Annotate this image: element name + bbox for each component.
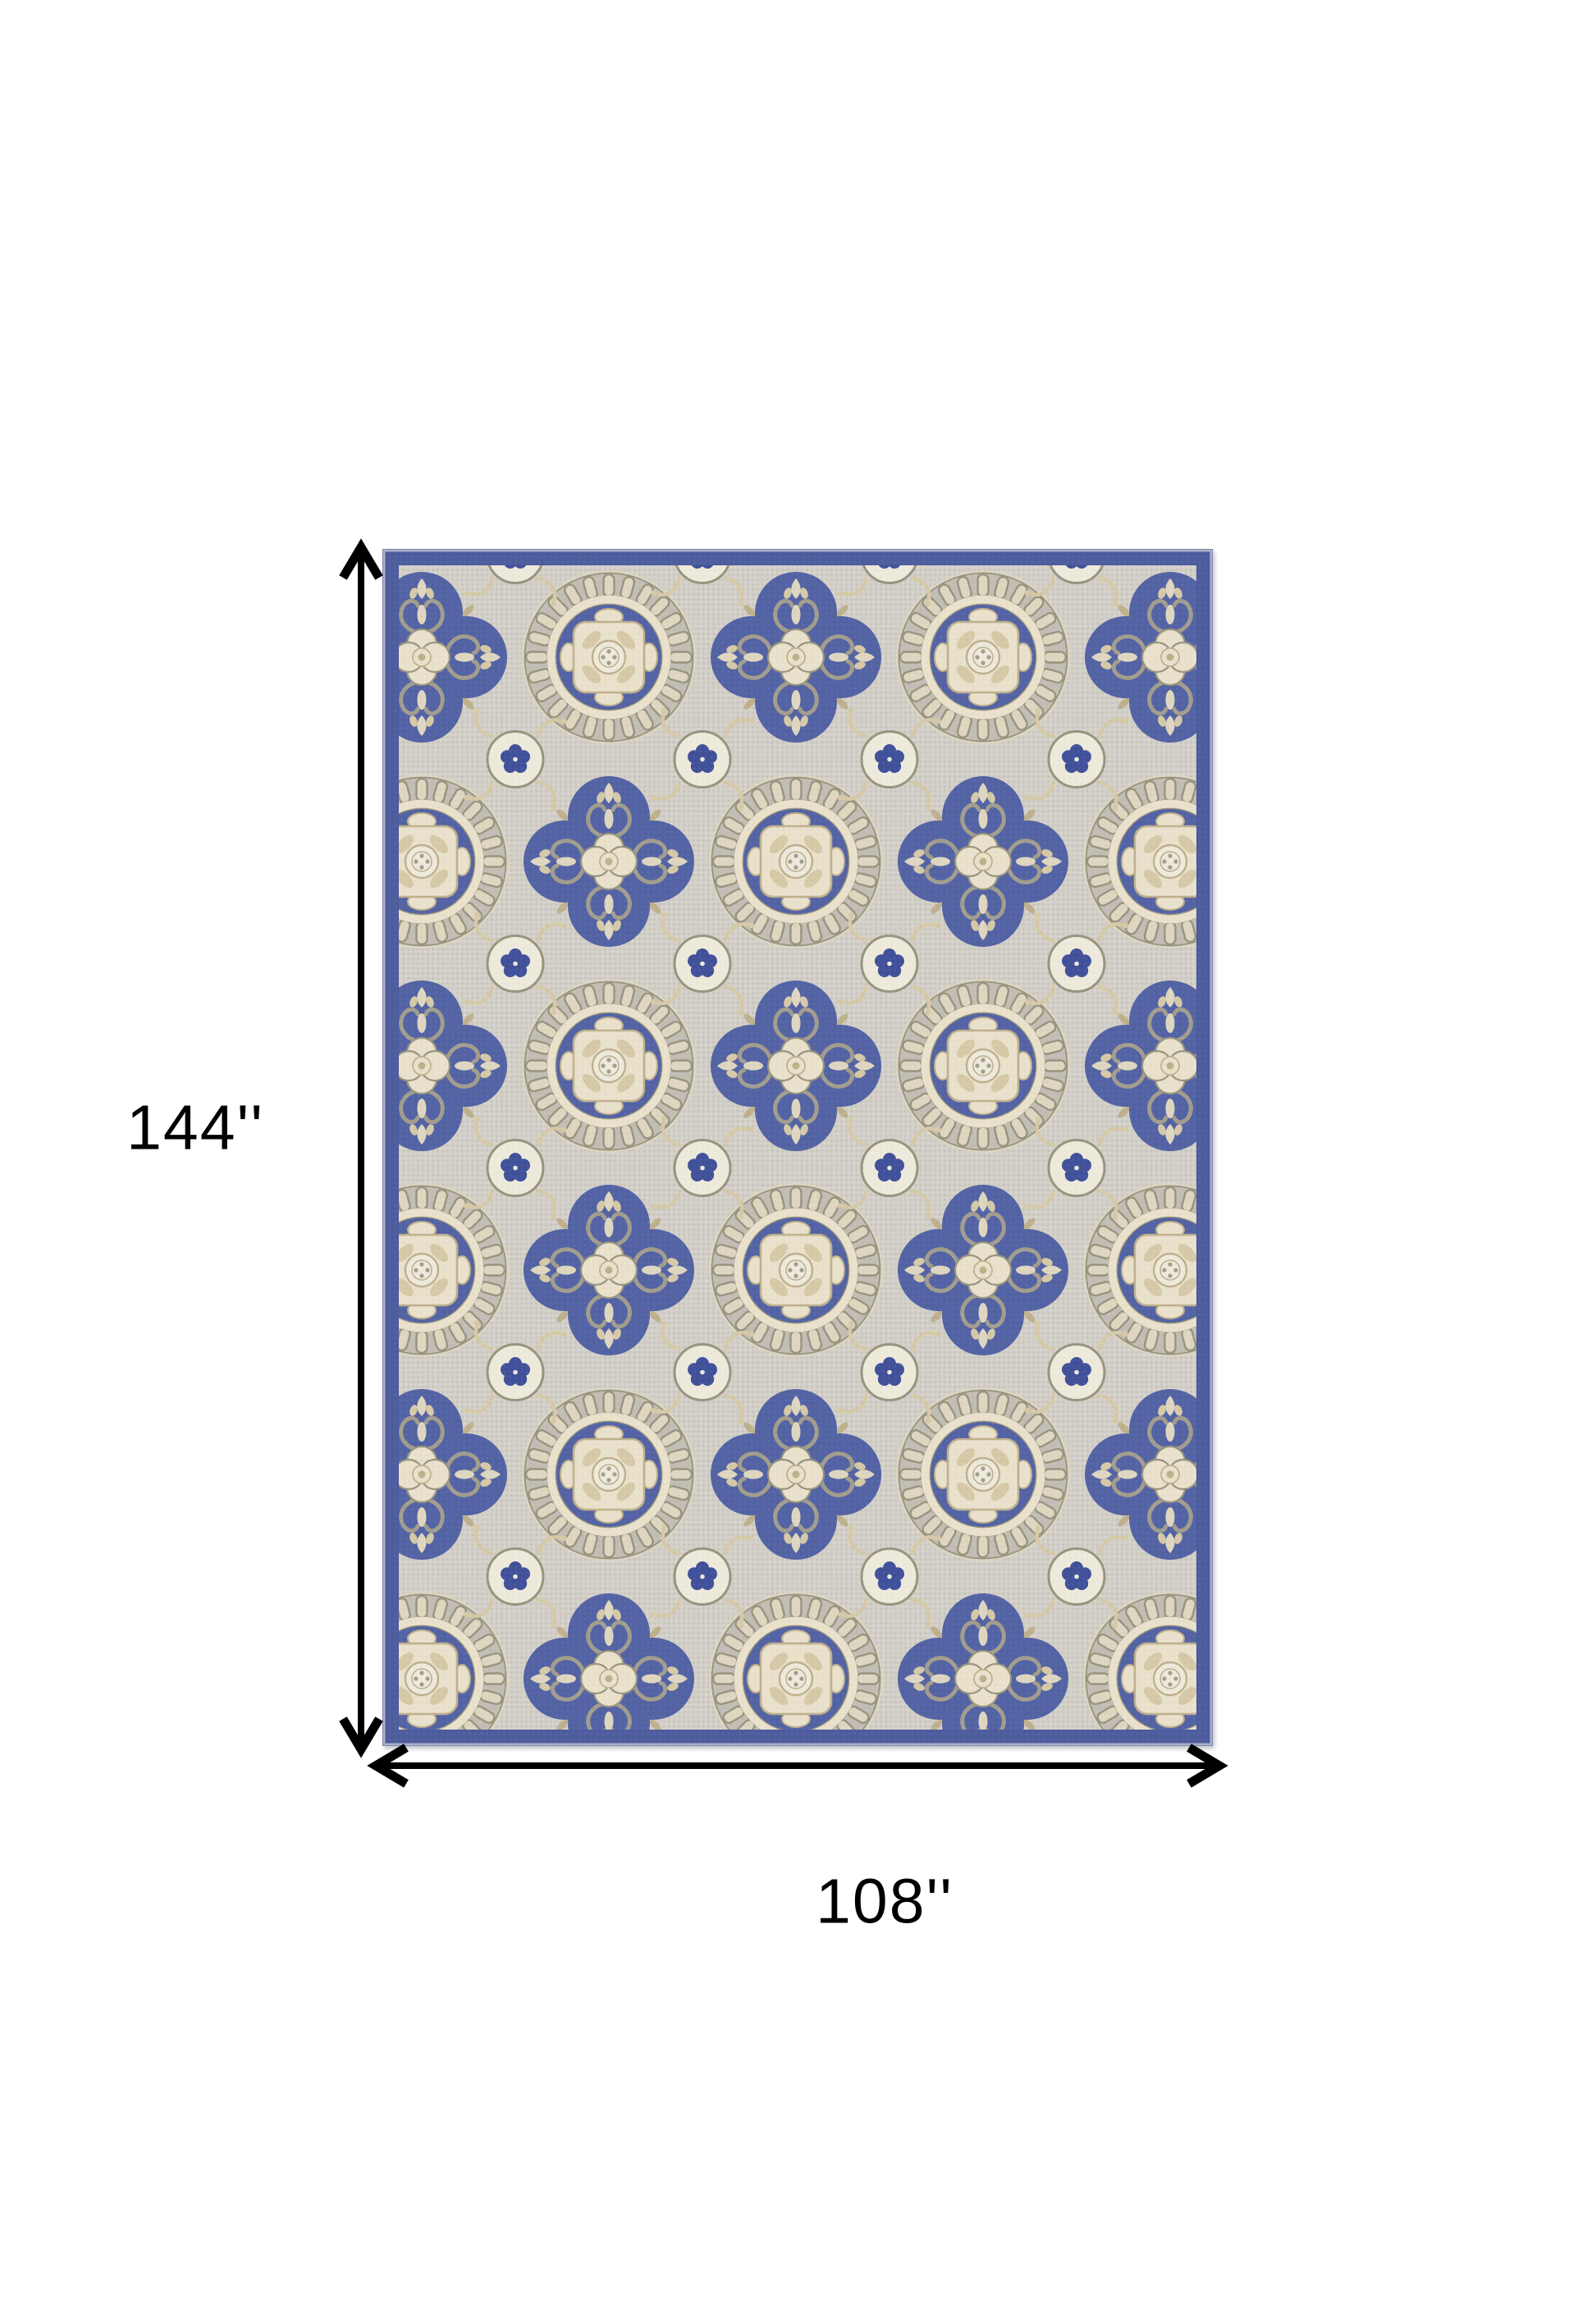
arrowhead-up-icon — [343, 547, 379, 578]
horizontal-dimension-arrow — [376, 1748, 1219, 1784]
rug-product-image — [382, 549, 1213, 1746]
width-dimension-label: 108'' — [816, 1866, 953, 1939]
arrowhead-right-icon — [1189, 1748, 1219, 1784]
vertical-dimension-arrow — [343, 547, 379, 1749]
height-dimension-label: 144'' — [126, 1092, 264, 1165]
arrowhead-left-icon — [376, 1748, 406, 1784]
rug-texture — [382, 549, 1213, 1746]
arrowhead-down-icon — [343, 1719, 379, 1749]
dimension-diagram: 144'' 108'' — [0, 0, 1596, 2299]
